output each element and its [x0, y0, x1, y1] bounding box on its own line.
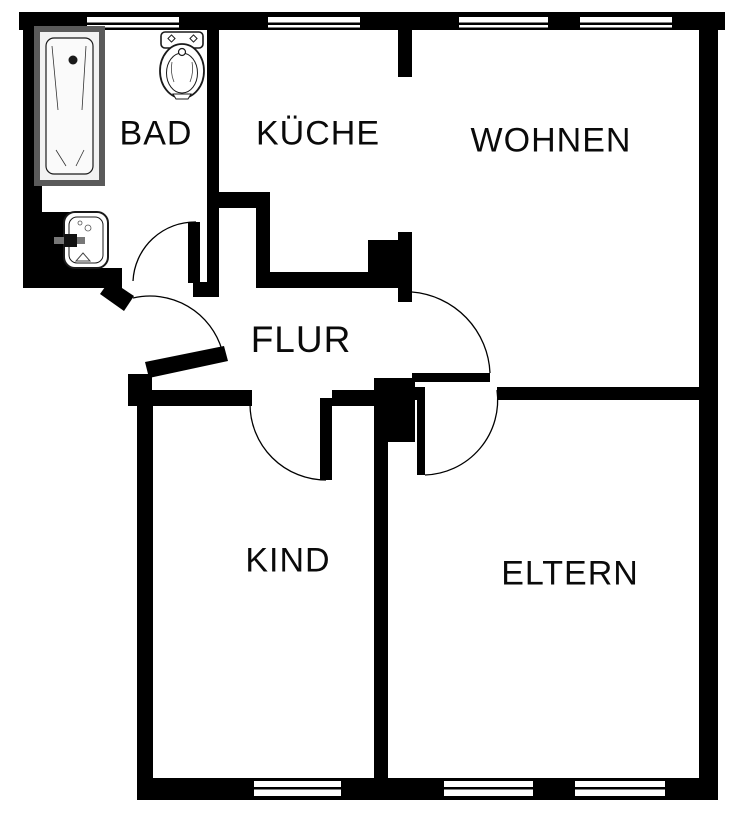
window-kueche	[268, 12, 360, 30]
entrance-door-arc	[133, 296, 222, 350]
wall-kueche-wohnen-stub	[398, 30, 412, 77]
wall-bottom-1	[137, 778, 254, 800]
toilet-icon	[160, 32, 204, 99]
wall-top-3	[360, 12, 459, 30]
window-eltern-1	[444, 778, 533, 800]
wall-bottom-4	[665, 778, 718, 800]
window-wohnen-2	[580, 12, 672, 30]
wohnen-door-arc	[412, 292, 490, 373]
wall-flur-kind	[128, 390, 252, 406]
room-label-kueche: KÜCHE	[256, 115, 380, 154]
wall-kind-left	[137, 390, 153, 800]
room-label-eltern: ELTERN	[501, 555, 639, 594]
wohnen-door-leaf	[412, 373, 490, 382]
wall-wohnen-eltern	[497, 387, 700, 400]
room-label-kind: KIND	[245, 542, 330, 581]
bad-door-arc	[133, 222, 196, 281]
wall-bottom-2	[341, 778, 444, 800]
wall-top-2	[179, 12, 268, 30]
bad-door-leaf	[188, 222, 200, 283]
wall-right	[699, 12, 718, 800]
wall-eltern-step	[398, 387, 425, 400]
window-eltern-2	[575, 778, 665, 800]
wall-kueche-bottom	[256, 272, 368, 288]
kind-door-leaf	[320, 398, 332, 480]
wall-bad-door-post	[193, 282, 219, 297]
window-kind	[254, 778, 341, 800]
wall-top-4	[548, 12, 580, 30]
wall-kueche-pier-strip	[398, 232, 412, 302]
eltern-door-leaf	[417, 400, 425, 475]
eltern-door-arc	[425, 390, 498, 475]
wall-kind-eltern	[374, 442, 388, 778]
wall-flur-angled	[145, 346, 228, 378]
room-label-wohnen: WOHNEN	[471, 122, 632, 161]
wall-bad-kueche	[207, 30, 219, 297]
window-wohnen-1	[459, 12, 548, 30]
room-label-flur: FLUR	[251, 319, 352, 361]
room-label-bad: BAD	[120, 115, 193, 154]
floor-plan: BAD KÜCHE WOHNEN FLUR KIND ELTERN	[0, 0, 748, 814]
wall-kueche-step-top	[218, 192, 270, 208]
wall-kind-hinge	[332, 390, 374, 406]
kind-door-arc	[250, 404, 326, 480]
wall-bottom-3	[533, 778, 575, 800]
bathtub-icon	[37, 29, 102, 183]
